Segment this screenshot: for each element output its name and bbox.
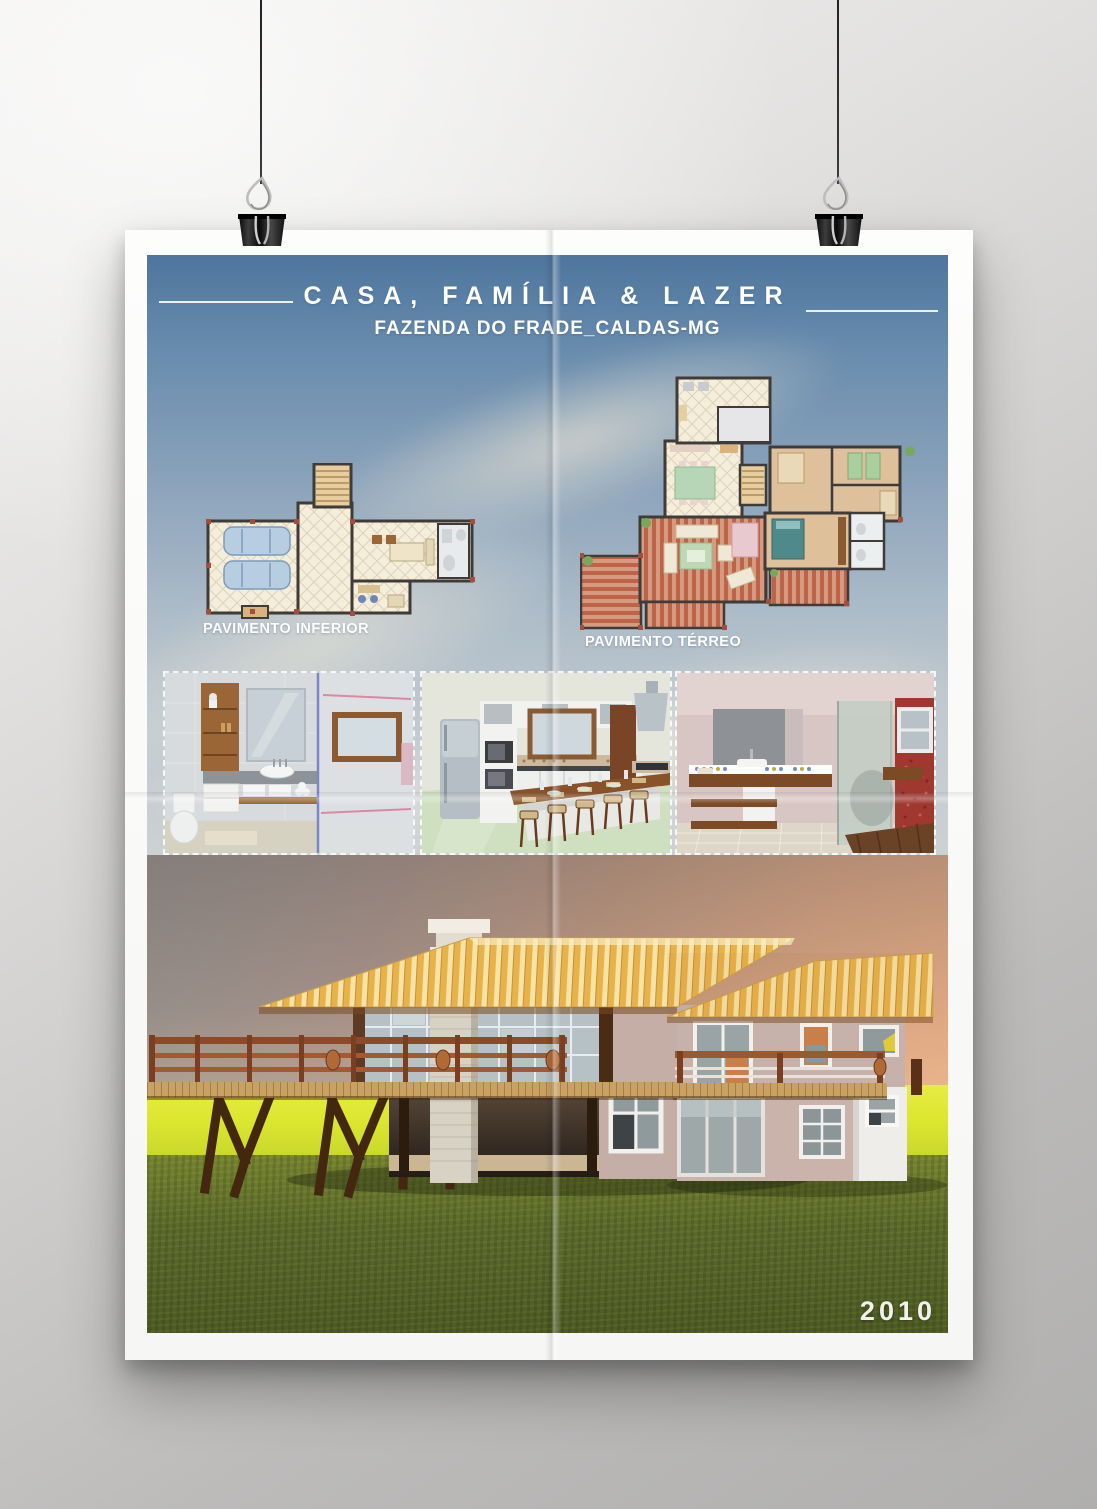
bathroom-render: [165, 673, 413, 853]
interior-thumb-bathroom: [163, 671, 415, 855]
poster-artwork: CASA, FAMÍLIA & LAZER FAZENDA DO FRADE_C…: [147, 255, 948, 1333]
floor-plan-label-inferior: PAVIMENTO INFERIOR: [203, 621, 369, 637]
floor-plan-inferior: [202, 463, 478, 621]
kitchen-render: [422, 673, 670, 853]
floor-plan-label-terreo: PAVIMENTO TÉRREO: [585, 634, 741, 650]
hanging-string-right: [837, 0, 839, 184]
binder-clip-icon: [236, 176, 288, 250]
poster: CASA, FAMÍLIA & LAZER FAZENDA DO FRADE_C…: [125, 230, 973, 1360]
binder-clip-icon: [813, 176, 865, 250]
sky-background: CASA, FAMÍLIA & LAZER FAZENDA DO FRADE_C…: [147, 255, 948, 855]
interior-thumb-kitchen: [420, 671, 672, 855]
hanging-string-left: [260, 0, 262, 184]
poster-subtitle: FAZENDA DO FRADE_CALDAS-MG: [147, 318, 948, 340]
floor-plan-terreo: [580, 347, 917, 631]
tiled-roof: [259, 938, 933, 1023]
interior-thumb-suite-bathroom: [675, 671, 936, 855]
floor-plan-inferior-drawing: [202, 463, 478, 621]
house-exterior-render: [147, 855, 948, 1333]
suite-bathroom-render: [677, 673, 934, 853]
poster-year: 2010: [860, 1296, 936, 1327]
poster-mockup-scene: CASA, FAMÍLIA & LAZER FAZENDA DO FRADE_C…: [0, 0, 1097, 1509]
exterior-render-section: 2010: [147, 855, 948, 1333]
floor-plan-terreo-drawing: [580, 347, 917, 631]
poster-title: CASA, FAMÍLIA & LAZER: [147, 282, 948, 311]
